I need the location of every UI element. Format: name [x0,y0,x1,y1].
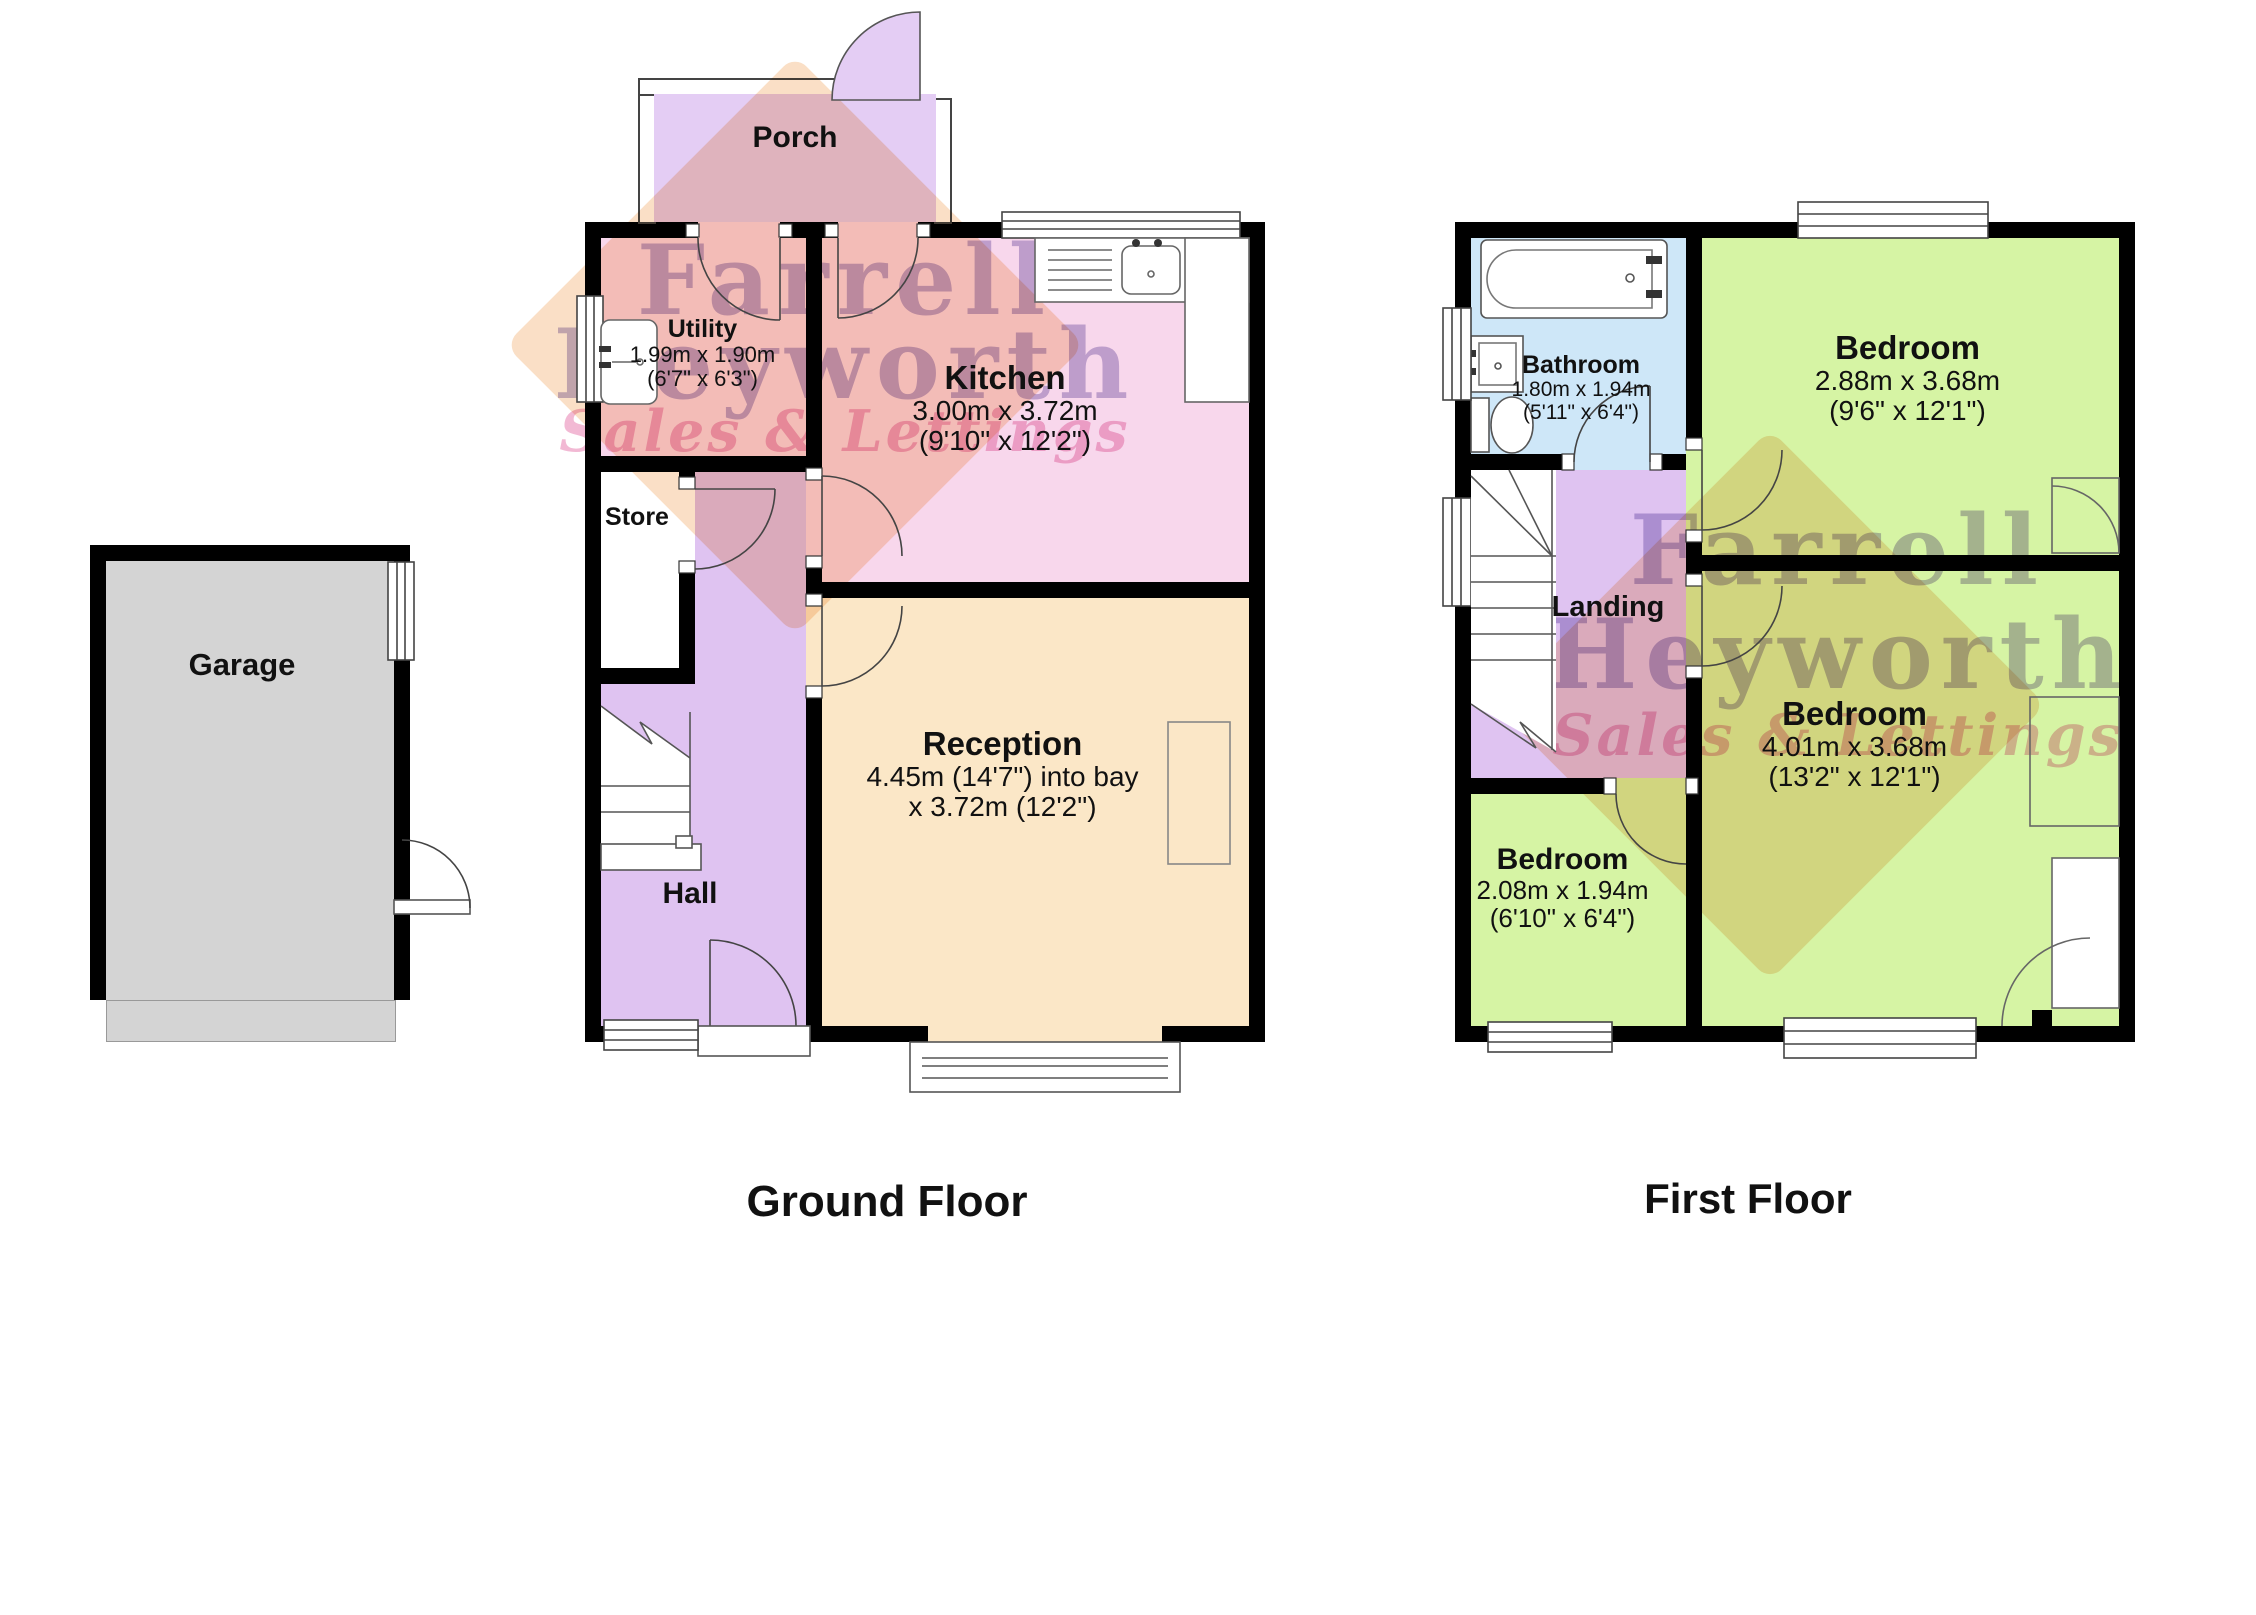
bathtub [1481,240,1667,318]
bedroom-small-label: Bedroom 2.08m x 1.94m (6'10" x 6'4") [1445,844,1680,933]
bedroom-rear-label: Bedroom 4.01m x 3.68m (13'2" x 12'1") [1732,696,1977,792]
hall-label: Hall [630,878,750,910]
first-floor-title: First Floor [1588,1176,1908,1221]
reception-chimney [1168,722,1230,864]
bay-window [910,1042,1180,1092]
garage-window [388,562,414,660]
front-door-threshold [698,1026,810,1056]
bathroom-label: Bathroom 1.80m x 1.94m (5'11" x 6'4") [1481,352,1681,424]
store-label: Store [577,504,697,531]
ground-floor-title: Ground Floor [727,1178,1047,1226]
reception-label: Reception 4.45m (14'7") into bay x 3.72m… [855,726,1150,822]
porch-label: Porch [695,122,895,154]
stairs-ground [601,706,701,870]
garage-side-door [394,840,470,914]
landing-label: Landing [1518,592,1698,623]
bedroom-front-label: Bedroom 2.88m x 3.68m (9'6" x 12'1") [1785,330,2030,426]
utility-label: Utility 1.99m x 1.90m (6'7" x 6'3") [595,316,810,391]
floorplan-canvas: Farrell Heyworth Sales & Lettings Farrel… [0,0,2256,1615]
kitchen-label: Kitchen 3.00m x 3.72m (9'10" x 12'2") [885,360,1125,456]
porch-door-icon [832,12,920,100]
bedroom-cupboards [2002,478,2119,1026]
garage-label: Garage [152,648,332,681]
